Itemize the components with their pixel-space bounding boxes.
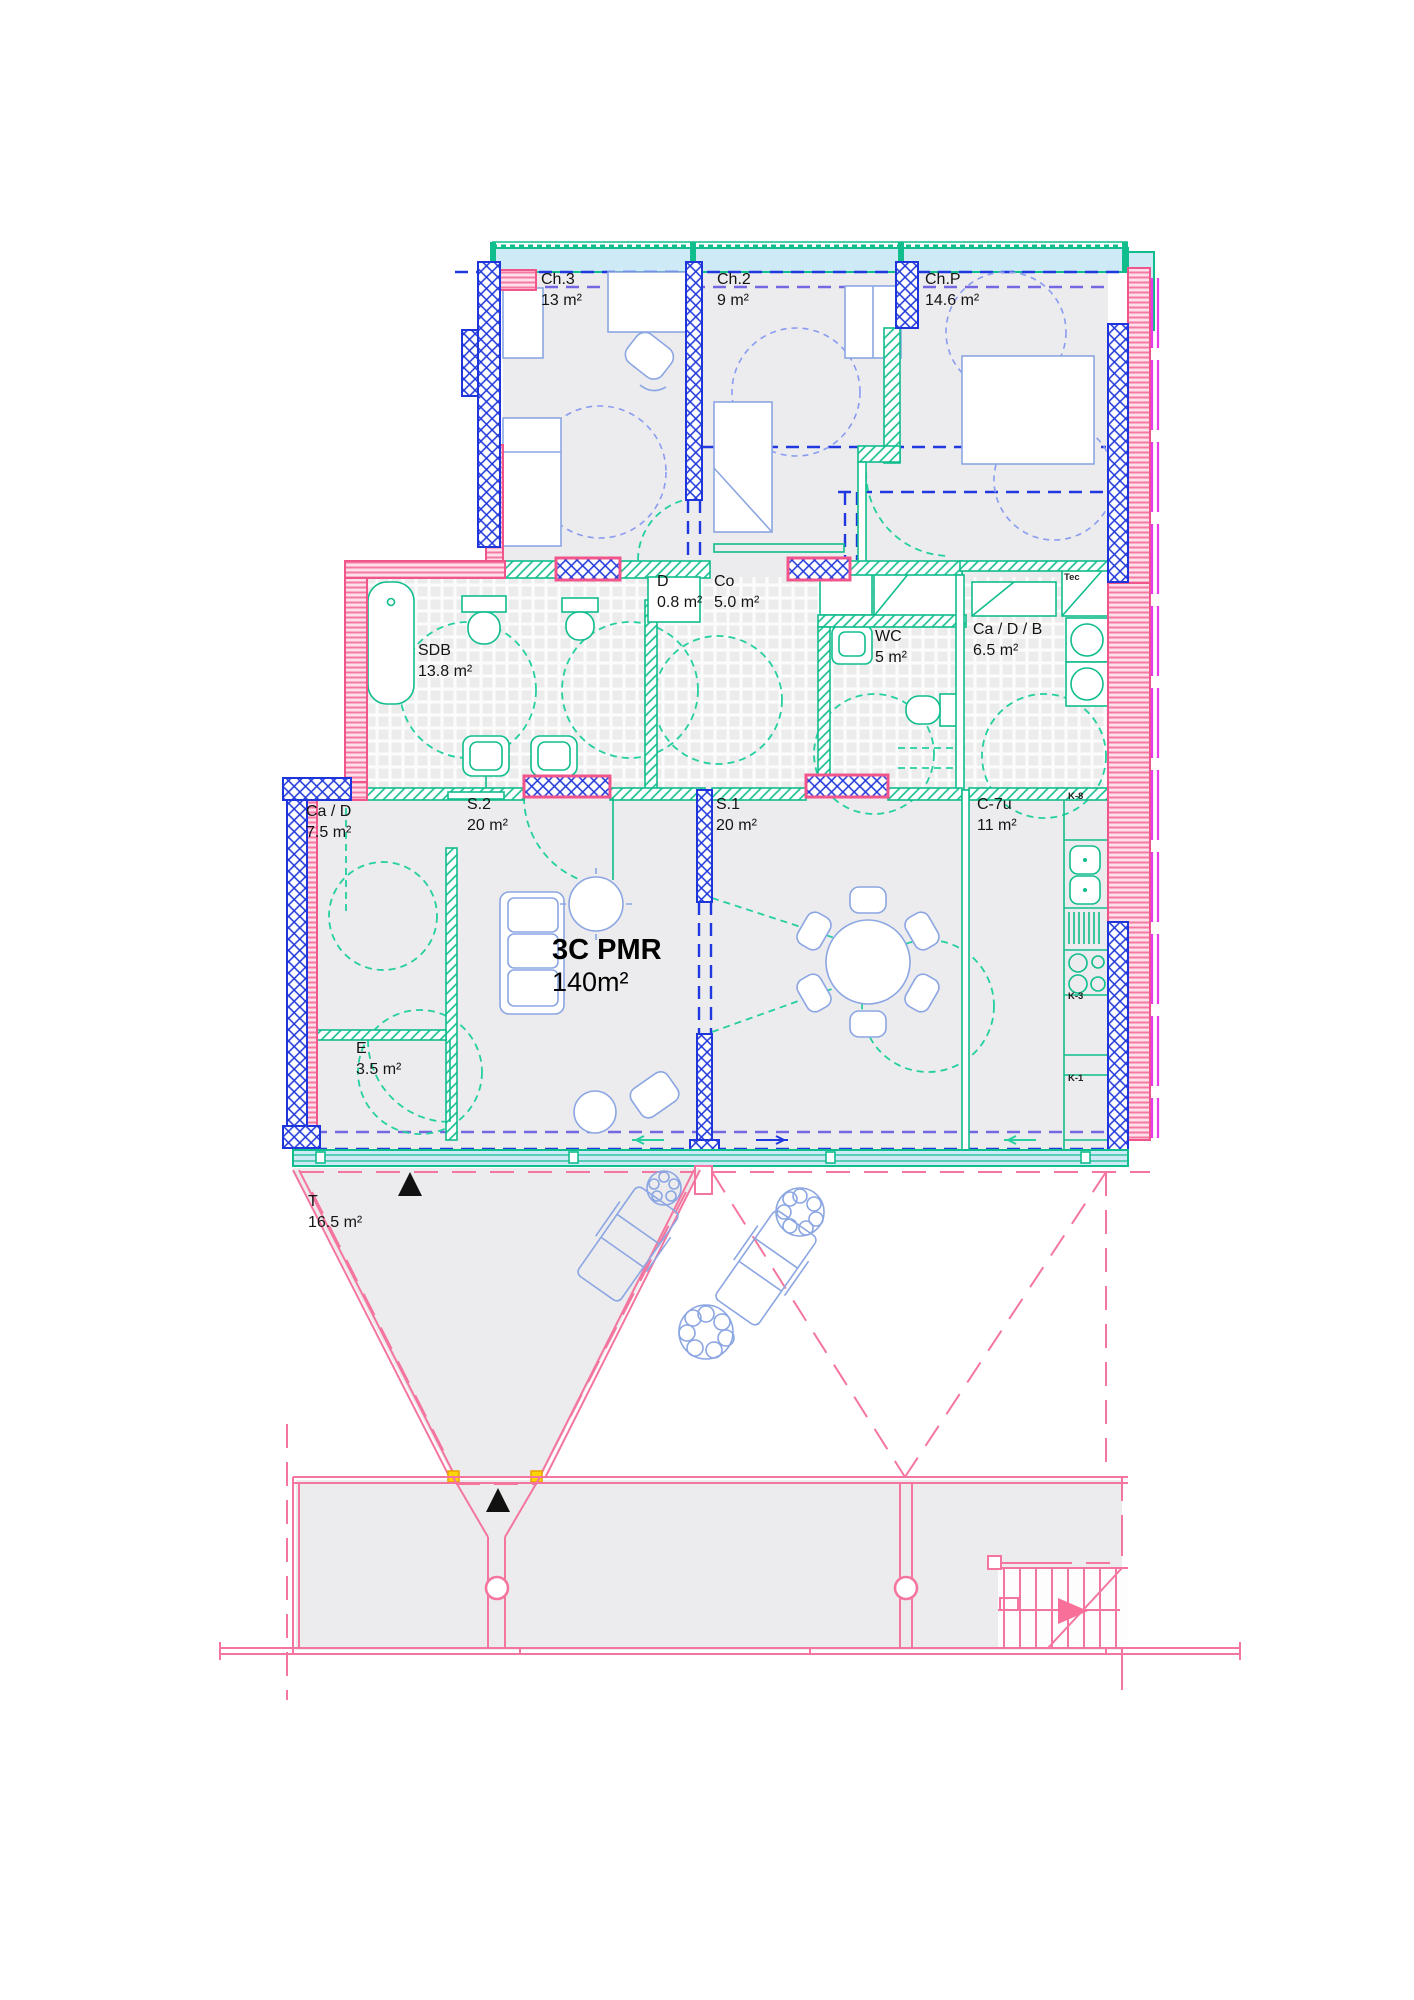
room-label-co: Co5.0 m² [714,571,759,613]
kitchen-unit-label-k8: K-8 [1068,791,1083,802]
room-label-c7u: C-7u11 m² [977,794,1017,836]
room-label-sdb: SDB13.8 m² [418,640,472,682]
room-label-t: T16.5 m² [308,1191,362,1233]
kitchen-unit-label-k3: K-3 [1068,991,1083,1002]
apartment-title: 3C PMR 140m² [552,934,662,998]
room-label-cad: Ca / D7.5 m² [306,801,351,843]
plant-icon [679,1305,734,1359]
plant-icon [776,1188,824,1236]
apartment-type: 3C PMR [552,934,662,967]
label-tec: Tec [1064,572,1080,583]
kitchen-unit-label-k1: K-1 [1068,1073,1083,1084]
room-label-chp: Ch.P14.6 m² [925,269,979,311]
room-label-s2: S.220 m² [467,794,508,836]
floor-plan-canvas: 3C PMR 140m² Ch.313 m² Ch.29 m² Ch.P14.6… [0,0,1414,2000]
floor-plan-drawing [0,0,1414,2000]
room-label-e: E3.5 m² [356,1038,401,1080]
room-label-d: D0.8 m² [657,571,702,613]
room-label-ch2: Ch.29 m² [717,269,751,311]
room-label-wc: WC5 m² [875,626,907,668]
room-label-s1: S.120 m² [716,794,757,836]
apartment-area: 140m² [552,967,662,998]
room-label-cadb: Ca / D / B6.5 m² [973,619,1042,661]
floor-fills [293,268,1122,1650]
room-label-ch3: Ch.313 m² [541,269,582,311]
window-band-right [1152,278,1158,1138]
